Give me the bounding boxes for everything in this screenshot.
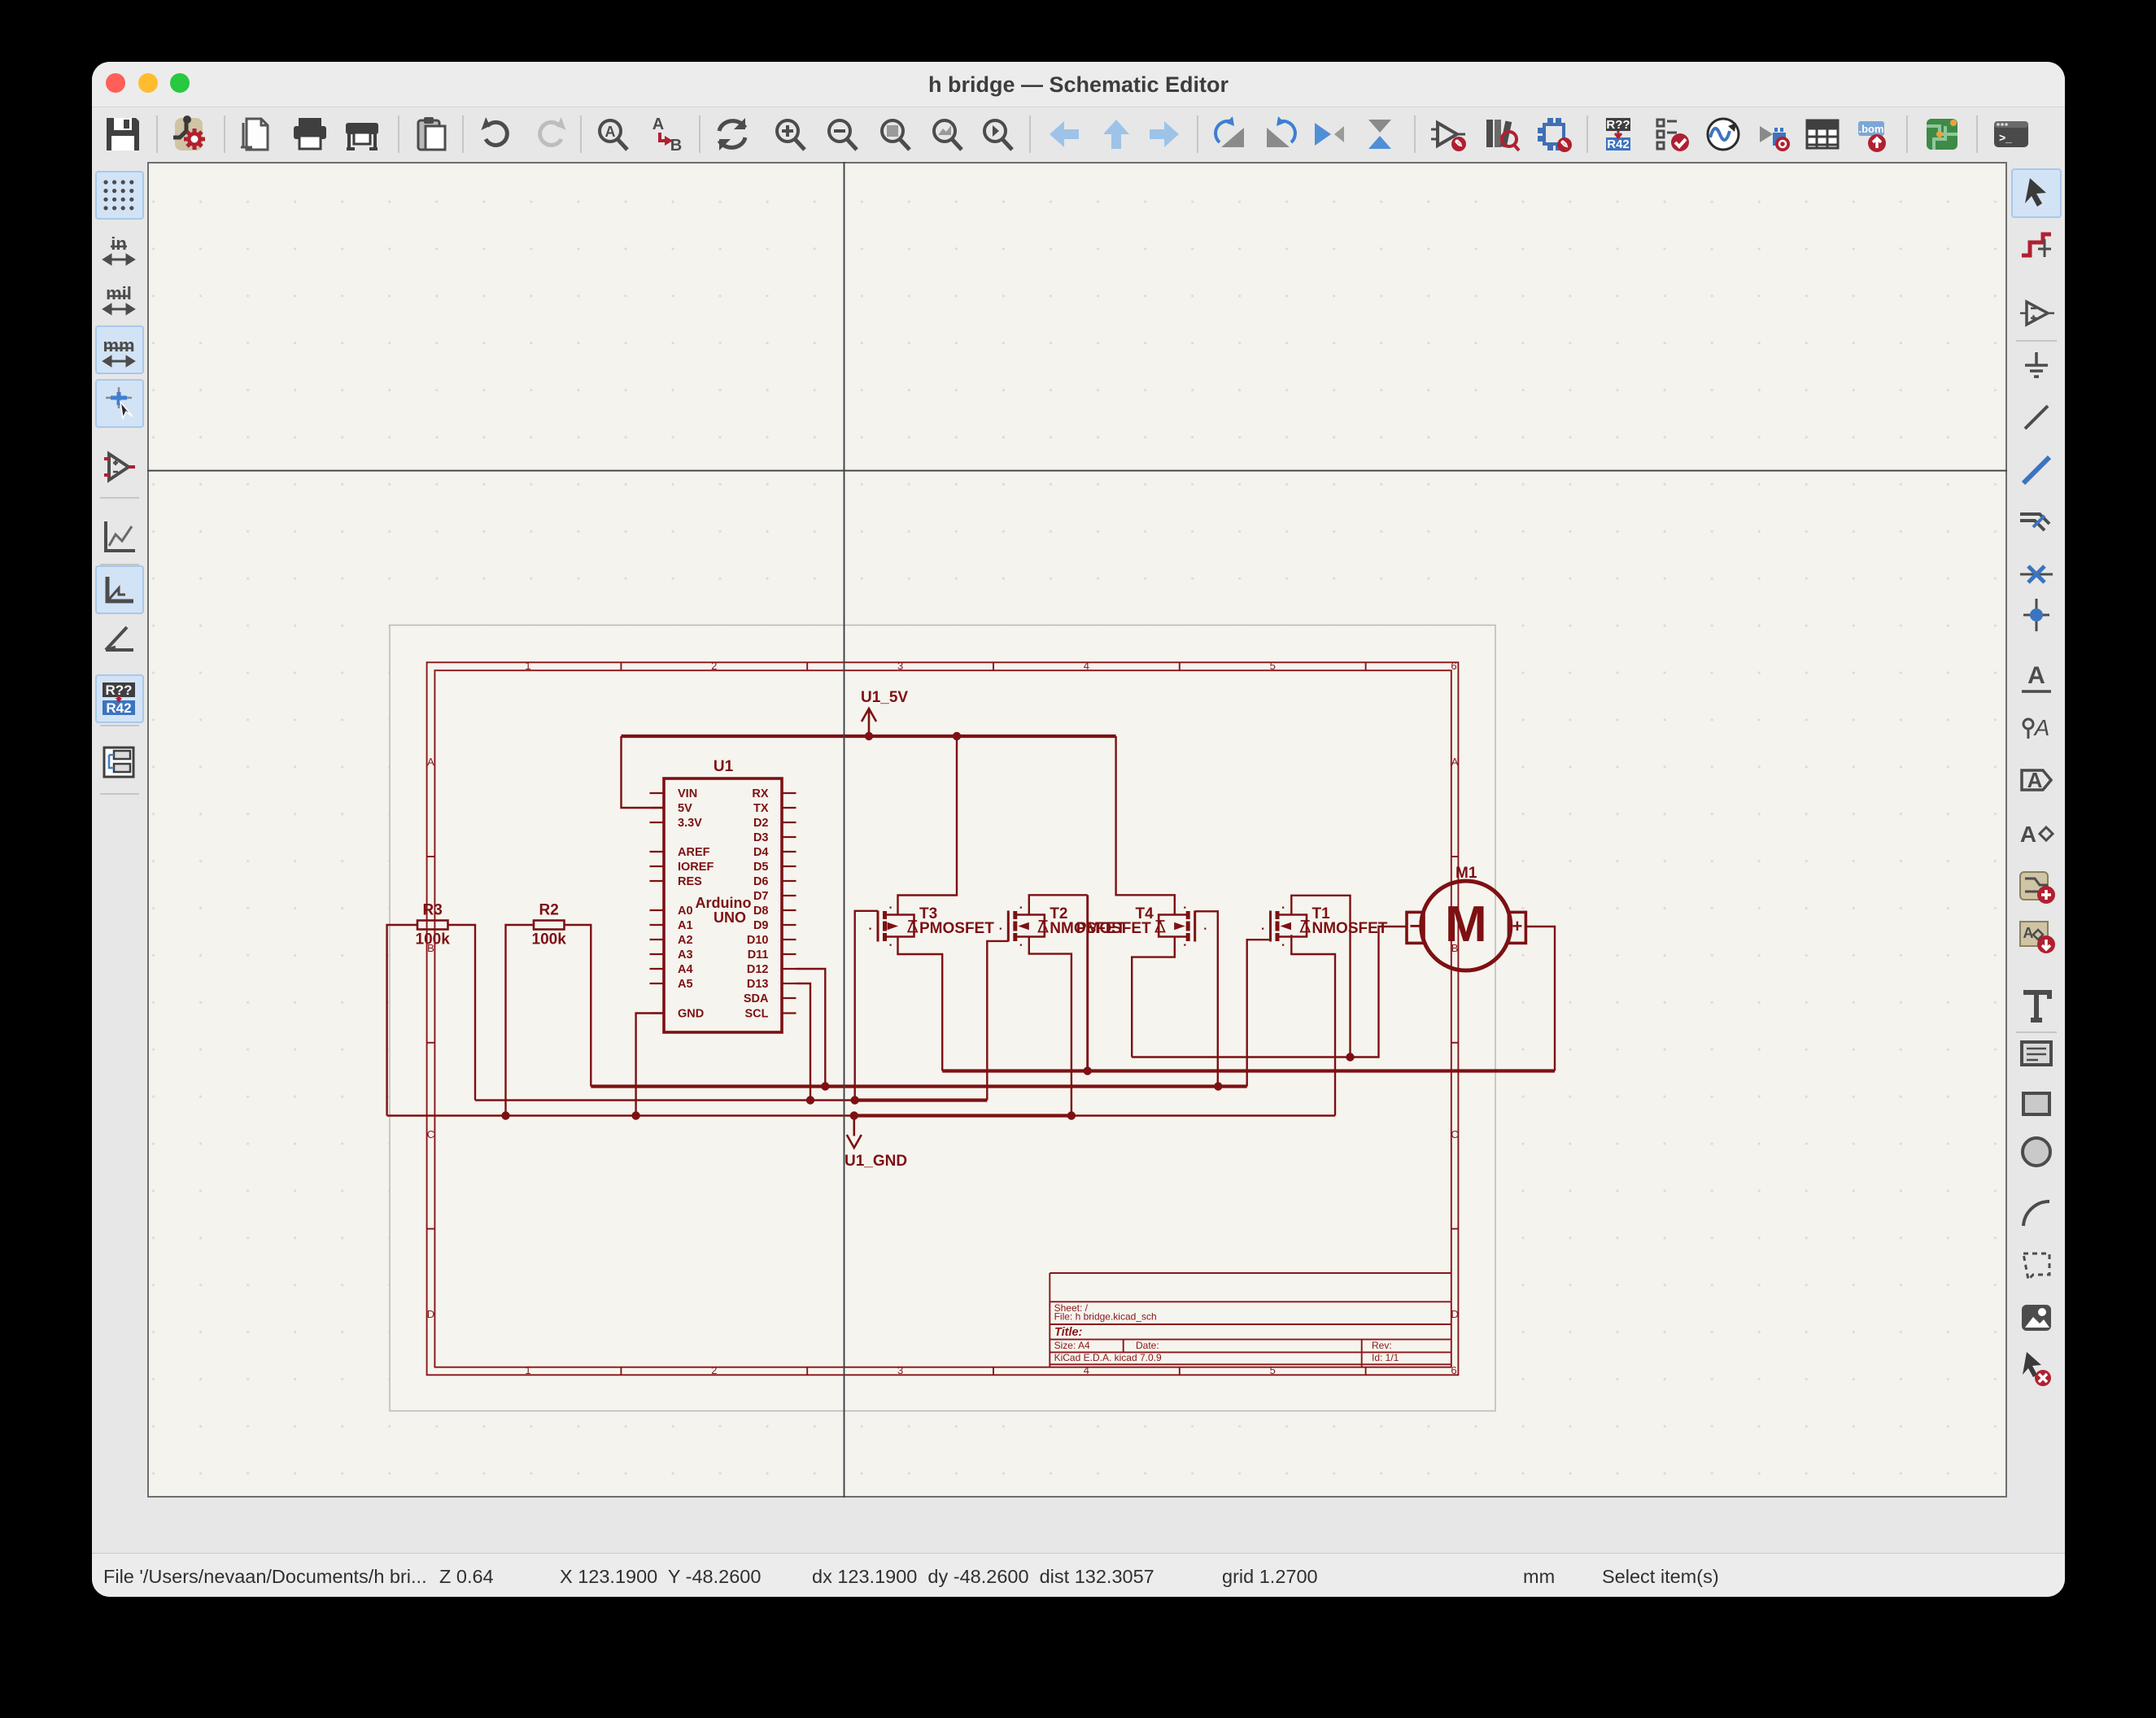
svg-text:D3: D3 xyxy=(753,831,769,844)
svg-text:Size: A4: Size: A4 xyxy=(1054,1340,1090,1351)
svg-text:D4: D4 xyxy=(753,846,769,859)
svg-text:100k: 100k xyxy=(416,931,451,948)
svg-text:4: 4 xyxy=(1084,1364,1089,1376)
svg-text:▪: ▪ xyxy=(1019,941,1022,949)
svg-text:▪: ▪ xyxy=(1184,904,1186,912)
svg-text:A: A xyxy=(427,756,434,768)
svg-text:▪: ▪ xyxy=(1184,941,1186,949)
svg-text:TX: TX xyxy=(753,802,769,815)
svg-text:6: 6 xyxy=(1451,660,1456,672)
svg-text:SCL: SCL xyxy=(745,1008,769,1021)
svg-text:>_: >_ xyxy=(1999,131,2012,144)
svg-text:Title:: Title: xyxy=(1054,1326,1083,1339)
svg-text:M1: M1 xyxy=(1456,865,1477,882)
svg-text:✎: ✎ xyxy=(1560,138,1569,150)
svg-text:A0: A0 xyxy=(678,905,693,918)
svg-text:U1_GND: U1_GND xyxy=(845,1153,907,1170)
svg-text:D: D xyxy=(1451,1308,1458,1320)
svg-text:UNO: UNO xyxy=(714,909,746,926)
svg-text:▪: ▪ xyxy=(869,925,871,933)
svg-text:U1_5V: U1_5V xyxy=(861,689,908,706)
svg-text:R??: R?? xyxy=(1606,118,1630,132)
svg-text:R2: R2 xyxy=(539,902,559,919)
svg-text:D11: D11 xyxy=(748,948,769,961)
svg-text:U1: U1 xyxy=(714,758,734,775)
svg-text:A4: A4 xyxy=(678,963,693,976)
svg-text:mil: mil xyxy=(106,283,132,303)
svg-text:A: A xyxy=(2033,715,2050,740)
svg-text:A5: A5 xyxy=(678,978,693,991)
svg-text:VIN: VIN xyxy=(678,787,697,800)
svg-text:AREF: AREF xyxy=(678,846,710,859)
svg-text:6: 6 xyxy=(1451,1364,1456,1376)
svg-text:D12: D12 xyxy=(747,963,769,976)
svg-text:Id: 1/1: Id: 1/1 xyxy=(1372,1352,1399,1363)
svg-text:+: + xyxy=(1512,916,1522,936)
svg-text:2: 2 xyxy=(711,1364,717,1376)
svg-text:A: A xyxy=(652,116,664,133)
svg-text:Arduino: Arduino xyxy=(696,895,752,911)
svg-text:3: 3 xyxy=(897,660,903,672)
svg-text:A: A xyxy=(2023,925,2034,941)
svg-text:D9: D9 xyxy=(753,919,769,932)
svg-text:A2: A2 xyxy=(678,934,693,947)
svg-text:Date:: Date: xyxy=(1136,1340,1159,1351)
svg-text:5: 5 xyxy=(1270,1364,1276,1376)
svg-text:A: A xyxy=(2027,768,2043,792)
svg-text:RX: RX xyxy=(752,787,768,800)
svg-text:PMOSFET: PMOSFET xyxy=(1076,920,1151,937)
svg-text:4: 4 xyxy=(1084,660,1089,672)
svg-text:File: h bridge.kicad_sch: File: h bridge.kicad_sch xyxy=(1054,1311,1157,1323)
svg-text:▪: ▪ xyxy=(1204,925,1207,933)
svg-text:RES: RES xyxy=(678,875,702,888)
svg-text:▪: ▪ xyxy=(1282,904,1285,912)
svg-text:R42: R42 xyxy=(1607,137,1630,151)
svg-text:▪: ▪ xyxy=(1019,904,1022,912)
svg-text:▪: ▪ xyxy=(1282,941,1285,949)
svg-text:A: A xyxy=(2020,822,2036,847)
svg-text:3: 3 xyxy=(897,1364,903,1376)
svg-text:2: 2 xyxy=(711,660,717,672)
svg-text:▪: ▪ xyxy=(889,904,892,912)
svg-text:GND: GND xyxy=(678,1008,704,1021)
svg-text:mm: mm xyxy=(103,335,134,355)
svg-text:KiCad E.D.A. kicad 7.0.9: KiCad E.D.A. kicad 7.0.9 xyxy=(1054,1352,1162,1363)
svg-text:R3: R3 xyxy=(423,902,443,919)
svg-text:D2: D2 xyxy=(753,817,769,830)
svg-text:−: − xyxy=(1409,914,1421,938)
svg-text:A: A xyxy=(1451,756,1459,768)
svg-text:NMOSFET: NMOSFET xyxy=(1312,920,1388,937)
svg-text:D13: D13 xyxy=(747,978,769,991)
svg-text:in: in xyxy=(111,233,127,254)
svg-text:1: 1 xyxy=(525,1364,530,1376)
svg-text:SDA: SDA xyxy=(744,992,769,1005)
svg-text:.bom: .bom xyxy=(1858,123,1883,135)
svg-text:C: C xyxy=(427,1128,434,1140)
svg-text:D6: D6 xyxy=(753,875,769,888)
svg-text:✎: ✎ xyxy=(1455,137,1464,150)
svg-text:C: C xyxy=(1451,1128,1458,1140)
svg-text:D7: D7 xyxy=(753,890,769,903)
svg-text:5V: 5V xyxy=(678,802,692,815)
svg-text:Rev:: Rev: xyxy=(1372,1340,1392,1351)
svg-text:▪: ▪ xyxy=(889,941,892,949)
svg-text:A3: A3 xyxy=(678,948,693,961)
svg-text:D: D xyxy=(427,1308,434,1320)
svg-text:D5: D5 xyxy=(753,861,769,874)
svg-text:▪: ▪ xyxy=(999,925,1002,933)
svg-text:PMOSFET: PMOSFET xyxy=(919,920,994,937)
svg-text:B: B xyxy=(670,137,682,154)
svg-text:A: A xyxy=(2027,662,2045,689)
svg-text:A: A xyxy=(605,124,616,140)
svg-text:▪: ▪ xyxy=(1262,925,1264,933)
svg-text:D10: D10 xyxy=(747,934,769,947)
svg-text:M: M xyxy=(1445,896,1487,953)
svg-text:1: 1 xyxy=(525,660,530,672)
svg-text:5: 5 xyxy=(1270,660,1276,672)
svg-text:D8: D8 xyxy=(753,905,769,918)
svg-text:A1: A1 xyxy=(678,919,693,932)
svg-text:3.3V: 3.3V xyxy=(678,817,702,830)
svg-text:IOREF: IOREF xyxy=(678,861,714,874)
svg-text:100k: 100k xyxy=(532,931,567,948)
